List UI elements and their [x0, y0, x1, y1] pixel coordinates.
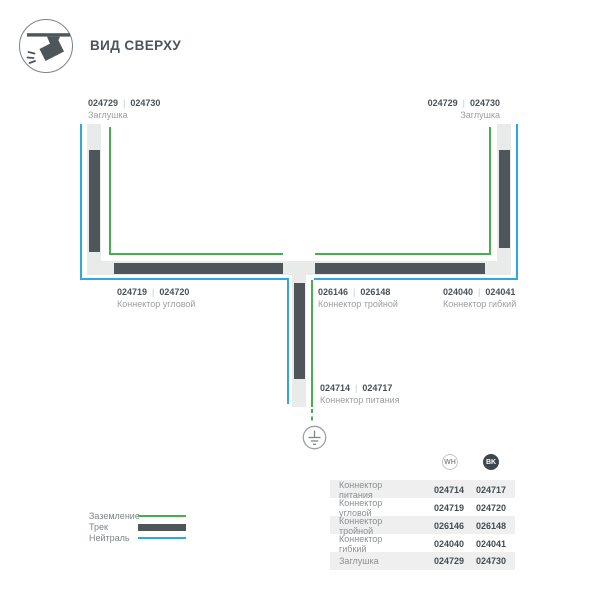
- flexible-connector-name: Коннектор гибкий: [443, 300, 516, 309]
- neutral-line-right-vertical: [516, 124, 518, 280]
- part-code-wh: 024729: [402, 556, 464, 566]
- code-bk: 024730: [470, 99, 500, 108]
- code-wh: 024040: [443, 288, 473, 297]
- table-row: Заглушка 024729 024730: [330, 552, 515, 570]
- corner-connector-name: Коннектор угловой: [117, 300, 195, 309]
- corner-connector-codes: 024719 | 024720: [117, 288, 195, 297]
- part-name: Коннектор угловой: [330, 498, 402, 518]
- column-badge-wh: WH: [442, 454, 458, 470]
- ground-line-top-left: [109, 253, 283, 255]
- legend-label: Трек: [89, 522, 138, 532]
- track-bar-left: [89, 150, 100, 252]
- ground-line-right-vertical: [489, 127, 491, 255]
- track-spotlight-icon: [20, 20, 74, 74]
- legend-label: Нейтраль: [89, 533, 138, 543]
- track-bar-right: [499, 150, 510, 248]
- neutral-line-bottom-right: [314, 278, 518, 280]
- ground-symbol: [302, 425, 327, 455]
- part-code-bk: 024717: [464, 485, 515, 495]
- neutral-line-middle-vertical: [287, 278, 289, 404]
- legend: Заземление Трек Нейтраль: [89, 510, 186, 544]
- part-code-wh: 024719: [402, 503, 464, 513]
- part-name: Коннектор питания: [330, 480, 402, 500]
- part-code-bk: 024720: [464, 503, 515, 513]
- code-wh: 024729: [88, 99, 118, 108]
- separator: |: [478, 288, 480, 297]
- separator: |: [123, 99, 125, 108]
- power-connector-codes: 024714 | 024717: [320, 384, 400, 393]
- label-endcap-right: 024729 | 024730 Заглушка: [428, 99, 500, 120]
- endcap-left-name: Заглушка: [88, 111, 160, 120]
- ground-line-top-right: [315, 253, 490, 255]
- part-code-bk: 024730: [464, 556, 515, 566]
- column-badge-bk: BK: [483, 454, 499, 470]
- neutral-line-bottom-left: [80, 278, 289, 280]
- endcap-left-codes: 024729 | 024730: [88, 99, 160, 108]
- part-code-wh: 026146: [402, 521, 464, 531]
- flexible-connector-codes: 024040 | 024041: [443, 288, 516, 297]
- ground-line-left-vertical: [109, 127, 111, 255]
- page-title: ВИД СВЕРХУ: [90, 38, 181, 53]
- label-power-connector: 024714 | 024717 Коннектор питания: [320, 384, 400, 405]
- triple-connector-name: Коннектор тройной: [318, 300, 398, 309]
- code-bk: 024041: [485, 288, 515, 297]
- top-view-icon: [19, 19, 73, 73]
- ground-dashed-lead: [311, 409, 313, 424]
- part-name: Коннектор тройной: [330, 516, 402, 536]
- neutral-line-swatch: [138, 537, 186, 539]
- part-code-wh: 024714: [402, 485, 464, 495]
- code-wh: 024719: [117, 288, 147, 297]
- endcap-right-name: Заглушка: [428, 111, 500, 120]
- legend-item-neutral: Нейтраль: [89, 533, 186, 544]
- table-row: Коннектор гибкий 024040 024041: [330, 534, 515, 552]
- ground-line-middle-vertical: [311, 280, 313, 407]
- earth-ground-icon: [302, 425, 327, 450]
- legend-item-ground: Заземление: [89, 510, 186, 521]
- legend-label: Заземление: [89, 511, 138, 521]
- code-wh: 026146: [318, 288, 348, 297]
- parts-table-rows: Коннектор питания 024714 024717 Коннекто…: [330, 480, 515, 570]
- separator: |: [355, 384, 357, 393]
- table-row: Коннектор угловой 024719 024720: [330, 498, 515, 516]
- part-name: Заглушка: [330, 556, 402, 566]
- track-swatch: [138, 524, 186, 531]
- label-flexible-connector: 024040 | 024041 Коннектор гибкий: [443, 288, 516, 309]
- code-bk: 024720: [159, 288, 189, 297]
- table-row: Коннектор питания 024714 024717: [330, 480, 515, 498]
- label-triple-connector: 026146 | 026148 Коннектор тройной: [318, 288, 398, 309]
- legend-item-track: Трек: [89, 521, 186, 532]
- code-bk: 024730: [130, 99, 160, 108]
- endcap-right-codes: 024729 | 024730: [428, 99, 500, 108]
- ground-line-swatch: [138, 515, 186, 517]
- track-bar-horizontal-right: [315, 263, 485, 274]
- part-code-wh: 024040: [402, 539, 464, 549]
- separator: |: [152, 288, 154, 297]
- power-connector-name: Коннектор питания: [320, 396, 400, 405]
- separator: |: [463, 99, 465, 108]
- triple-connector-codes: 026146 | 026148: [318, 288, 398, 297]
- label-endcap-left: 024729 | 024730 Заглушка: [88, 99, 160, 120]
- part-code-bk: 024041: [464, 539, 515, 549]
- code-wh: 024729: [428, 99, 458, 108]
- track-bar-middle: [294, 283, 305, 379]
- neutral-line-left-vertical: [80, 124, 82, 280]
- part-name: Коннектор гибкий: [330, 534, 402, 554]
- label-corner-connector: 024719 | 024720 Коннектор угловой: [117, 288, 195, 309]
- code-wh: 024714: [320, 384, 350, 393]
- part-code-bk: 026148: [464, 521, 515, 531]
- code-bk: 024717: [362, 384, 392, 393]
- track-bar-horizontal-left: [114, 263, 283, 274]
- table-row: Коннектор тройной 026146 026148: [330, 516, 515, 534]
- code-bk: 026148: [360, 288, 390, 297]
- catalog-page: ВИД СВЕРХУ 024729 |: [0, 0, 600, 600]
- separator: |: [353, 288, 355, 297]
